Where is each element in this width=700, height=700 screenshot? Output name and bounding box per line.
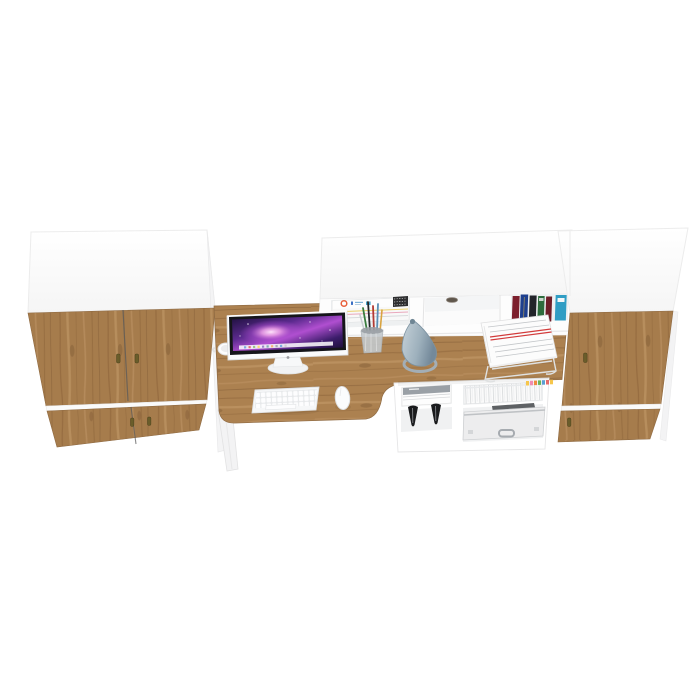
under-desk-shelf <box>394 376 553 452</box>
right-wardrobe-door-lower <box>558 409 660 442</box>
door-handle <box>568 418 571 427</box>
left-wardrobe-doors-upper <box>28 308 215 406</box>
keyboard <box>252 387 319 413</box>
index-tab <box>542 380 545 385</box>
right-wardrobe-door-upper <box>562 311 673 406</box>
book-label <box>557 298 564 302</box>
briefcase-corner <box>534 427 539 431</box>
magazine-text <box>369 302 371 306</box>
product-render <box>0 0 700 700</box>
door-handle <box>135 354 139 363</box>
index-tab <box>538 380 541 385</box>
shelf-opening <box>401 407 452 432</box>
door-handle <box>117 354 121 363</box>
hutch-face <box>320 230 572 299</box>
index-tab <box>534 381 537 386</box>
index-tab <box>550 380 553 385</box>
book-label <box>539 298 544 301</box>
left-wardrobe-top-face <box>28 230 215 313</box>
right-wardrobe-top-face <box>558 228 688 313</box>
magazine-text <box>355 304 361 305</box>
door-handle <box>584 353 588 363</box>
magazine-text <box>355 302 363 303</box>
index-tab <box>526 381 529 386</box>
cup-rim <box>361 327 383 334</box>
door-handle <box>148 417 151 425</box>
apple-logo <box>287 356 290 359</box>
briefcase-corner <box>468 430 473 434</box>
shelf-magazines <box>402 385 451 406</box>
index-tab <box>530 381 533 386</box>
book-spine <box>512 296 520 322</box>
door-handle <box>131 418 134 426</box>
lamp-apex-cap <box>410 319 415 324</box>
left-wardrobe-doors-lower <box>47 404 206 447</box>
briefcase <box>463 407 545 440</box>
cable-grommet <box>447 298 458 303</box>
index-tab <box>546 380 549 385</box>
magazine-text <box>351 302 353 305</box>
furniture-scene <box>0 0 700 700</box>
left-wardrobe <box>28 230 226 452</box>
right-wardrobe <box>558 228 688 442</box>
checkered-notebook <box>393 296 408 307</box>
